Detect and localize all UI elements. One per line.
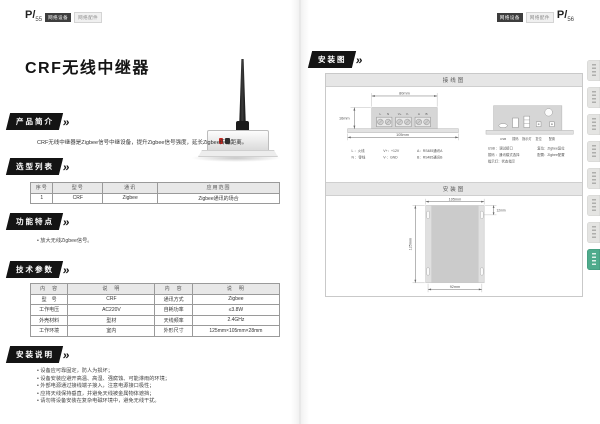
table-cell: 外形尺寸 — [155, 326, 192, 337]
column-header: 应用范围 — [157, 183, 279, 194]
terminal-blocks — [377, 117, 431, 127]
left-page-header: P/55 网络设备 网络配件 — [25, 9, 102, 26]
table-cell: 外壳材料 — [31, 315, 68, 326]
terminal-label: B — [426, 112, 428, 116]
wiring-diagram-terminals: 80mm L N V+ V- A B — [338, 90, 468, 179]
diagram-panel: 接线图 80mm L N V+ V- A B — [325, 73, 583, 297]
dip-switch-icon — [513, 118, 519, 127]
legend-item: L ：火线 — [351, 148, 365, 153]
ribbon-label: 选型列表 — [16, 161, 54, 172]
ribbon-label: 安装图 — [318, 54, 347, 65]
antenna-mount-hole — [545, 109, 553, 117]
section-heading-features: 功能特点 — [8, 215, 70, 228]
table-row: 工作电压 AC220V 自耗功率 ≤3.8W — [31, 305, 280, 316]
install-note: 请勿将设备安装在复杂电磁环境中，避免无线干扰。 — [37, 398, 170, 406]
edge-tab-active — [587, 249, 600, 270]
port-label: 拨码 — [512, 136, 518, 141]
table-cell: CRF — [53, 193, 103, 204]
reset-button-icon — [536, 122, 541, 127]
table-cell: 自耗功率 — [155, 305, 192, 316]
legend-item: 指示灯：状态指示 — [488, 159, 516, 164]
table-cell: Zigbee — [192, 294, 279, 305]
table-cell: 1 — [31, 193, 53, 204]
device-base-plate — [198, 150, 278, 157]
port-label: USB — [500, 137, 506, 141]
mounting-plate-body — [431, 205, 478, 282]
edge-tab — [587, 222, 600, 243]
install-notes-list: 设备应可靠固定，防人为损坏； 设备安装应避开高温、高湿、强腐蚀、可能淋雨的环境；… — [37, 368, 170, 406]
edge-tab — [587, 141, 600, 162]
page-number-prefix: P/ — [557, 9, 567, 21]
edge-tab-text — [592, 253, 596, 266]
section-heading-diagram: 安装图 — [310, 53, 362, 66]
edge-tab-text — [592, 199, 596, 212]
legend-item: V-：GND — [383, 156, 398, 160]
column-header: 内 容 — [31, 284, 68, 295]
mounting-flange — [486, 130, 573, 134]
feature-item: 放大无线Zigbee信号。 — [37, 238, 92, 246]
table-cell: AC220V — [68, 305, 155, 316]
edge-tab — [587, 87, 600, 108]
page-number-value: 56 — [567, 17, 574, 23]
port-label: 指示灯 — [522, 136, 531, 141]
mounting-diagram: 105mm 125mm 12mm 92mm — [401, 196, 507, 296]
install-note: 设备应可靠固定，防人为损坏； — [37, 368, 170, 376]
dim-label-right: 12mm — [496, 208, 505, 212]
table-cell: 通讯方式 — [155, 294, 192, 305]
column-header: 型号 — [53, 183, 103, 194]
table-cell: 室内 — [68, 326, 155, 337]
page-fold — [291, 0, 309, 424]
terminal-label: V- — [406, 112, 409, 116]
port-label: 配置 — [549, 136, 555, 141]
install-note: 外部电源通过接线端子接入，注意电源接口极性； — [37, 383, 170, 391]
page-number-value: 55 — [35, 17, 42, 23]
table-header-row: 序号 型号 通讯 应用范围 — [31, 183, 280, 194]
edge-tab-text — [592, 91, 596, 104]
legend-item: USB ：调试接口 — [488, 145, 513, 150]
page-title: CRF无线中继器 — [25, 54, 150, 78]
column-header: 序号 — [31, 183, 53, 194]
table-cell: 工作环境 — [31, 326, 68, 337]
edge-tab — [587, 60, 600, 81]
intro-paragraph: CRF无线中继器是Zigbee信号中继设备，提升Zigbee信号强度，延长Zig… — [37, 139, 262, 147]
column-header: 通讯 — [103, 183, 158, 194]
table-row: 1 CRF Zigbee Zigbee通讯的场合 — [31, 193, 280, 204]
edge-tab — [587, 114, 600, 135]
category-badge-dark: 网络设备 — [45, 13, 71, 22]
table-cell: Zigbee通讯的场合 — [157, 193, 279, 204]
dim-label-top: 105mm — [449, 197, 462, 201]
port-label: 复位 — [536, 136, 542, 141]
dim-label-top: 80mm — [399, 92, 410, 96]
mounting-diagram-area: 105mm 125mm 12mm 92mm — [326, 196, 582, 296]
legend-item: 复位：Zigbee复位 — [537, 145, 565, 150]
edge-tab-text — [592, 145, 596, 158]
specs-table: 内 容 说 明 内 容 说 明 型 号 CRF 通讯方式 Zigbee 工作电压… — [30, 283, 280, 337]
table-header-row: 内 容 说 明 内 容 说 明 — [31, 284, 280, 295]
dim-label-bottom: 92mm — [450, 285, 460, 289]
section-heading-specs: 技术参数 — [8, 263, 70, 276]
legend-item: V+：+12V — [383, 149, 400, 153]
section-heading-install: 安装说明 — [8, 348, 70, 361]
table-row: 外壳材料 型材 天线频率 2.4GHz — [31, 315, 280, 326]
dim-label-left: 125mm — [409, 238, 413, 251]
legend-item: 拨码 ：通讯模式选择 — [488, 152, 520, 157]
ribbon-label: 功能特点 — [16, 216, 54, 227]
section-heading-selection: 选型列表 — [8, 160, 70, 173]
table-row: 工作环境 室内 外形尺寸 125mm×105mm×28mm — [31, 326, 280, 337]
column-header: 内 容 — [155, 284, 192, 295]
table-cell: 125mm×105mm×28mm — [192, 326, 279, 337]
edge-tab — [587, 168, 600, 189]
dim-label-bottom: 105mm — [396, 133, 409, 137]
ribbon-label: 安装说明 — [16, 349, 54, 360]
column-header: 说 明 — [68, 284, 155, 295]
right-page-header: 网络设备 网络配件 P/56 — [497, 9, 574, 26]
table-cell: 天线频率 — [155, 315, 192, 326]
column-header: 说 明 — [192, 284, 279, 295]
table-cell: CRF — [68, 294, 155, 305]
table-cell: ≤3.8W — [192, 305, 279, 316]
legend-item: B：RS485通讯B — [417, 155, 443, 160]
mounting-flange — [348, 129, 459, 133]
legend-item: 配置：Zigbee配置 — [537, 152, 565, 157]
edge-tab-text — [592, 64, 596, 77]
table-row: 型 号 CRF 通讯方式 Zigbee — [31, 294, 280, 305]
port-legend: USB ：调试接口 拨码 ：通讯模式选择 指示灯：状态指示 复位：Zigbee复… — [488, 145, 565, 163]
category-badge-light: 网络配件 — [74, 12, 102, 23]
category-badge-light: 网络配件 — [526, 12, 554, 23]
terminal-legend: L ：火线 N ：零线 V+：+12V V-：GND A：RS485通讯A B：… — [351, 148, 443, 160]
ribbon-label: 技术参数 — [16, 264, 54, 275]
terminal-label: L — [380, 112, 382, 116]
page-number-prefix: P/ — [25, 9, 35, 21]
edge-tab-text — [592, 118, 596, 131]
legend-item: A：RS485通讯A — [417, 148, 443, 153]
dim-label-left: 16mm — [339, 117, 350, 121]
port-labels: USB 拨码 指示灯 复位 配置 — [500, 136, 555, 141]
edge-tab — [587, 195, 600, 216]
page-number-left: P/55 — [25, 9, 42, 26]
table-cell: 工作电压 — [31, 305, 68, 316]
terminal-label: N — [387, 112, 389, 116]
legend-item: N ：零线 — [351, 155, 365, 160]
edge-index-tabs — [587, 60, 600, 270]
table-cell: 型材 — [68, 315, 155, 326]
edge-tab-text — [592, 172, 596, 185]
wiring-panel-title: 接线图 — [326, 74, 582, 87]
page-number-right: P/56 — [557, 9, 574, 26]
catalog-spread: P/55 网络设备 网络配件 CRF无线中继器 产品简介 CRF无线中继器是Zi… — [0, 0, 600, 424]
terminal-label: V+ — [398, 112, 402, 116]
table-cell: 型 号 — [31, 294, 68, 305]
table-cell: 2.4GHz — [192, 315, 279, 326]
table-cell: Zigbee — [103, 193, 158, 204]
indicator-leds-icon — [524, 116, 530, 127]
feature-list: 放大无线Zigbee信号。 — [37, 238, 92, 246]
section-heading-intro: 产品简介 — [8, 115, 70, 128]
ribbon-label: 产品简介 — [16, 116, 54, 127]
usb-port-icon — [499, 124, 508, 128]
mounting-panel-title: 安装图 — [326, 182, 582, 196]
wiring-diagrams: 80mm L N V+ V- A B — [326, 87, 582, 182]
category-badge-dark: 网络设备 — [497, 13, 523, 22]
config-button-icon — [550, 122, 555, 127]
edge-tab-text — [592, 226, 596, 239]
wiring-diagram-ports: USB 拨码 指示灯 复位 配置 USB ：调试接口 拨码 ：通讯模式选择 指示… — [482, 100, 582, 174]
selection-table: 序号 型号 通讯 应用范围 1 CRF Zigbee Zigbee通讯的场合 — [30, 182, 280, 204]
